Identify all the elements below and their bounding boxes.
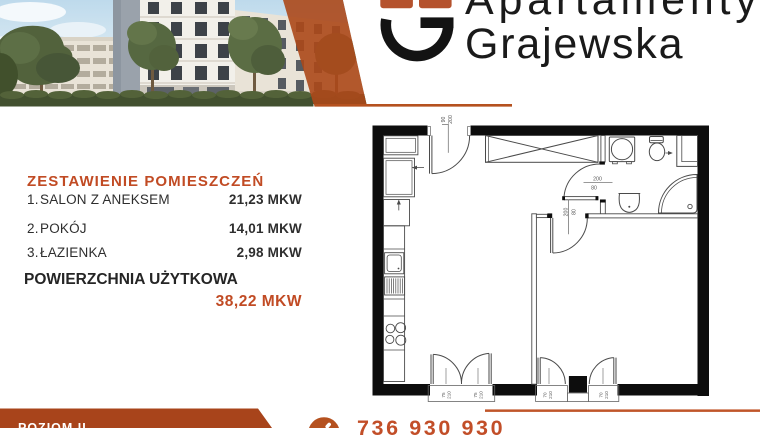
svg-text:80: 80 [572,209,578,215]
svg-text:210: 210 [604,391,609,399]
svg-text:75: 75 [473,392,478,398]
svg-text:210: 210 [548,391,553,399]
svg-text:200: 200 [448,115,454,124]
svg-text:75: 75 [441,392,446,398]
svg-text:200: 200 [593,177,602,183]
svg-text:70: 70 [543,392,548,398]
svg-text:80: 80 [591,186,597,192]
svg-text:70: 70 [599,392,604,398]
svg-text:90: 90 [441,117,447,123]
svg-text:210: 210 [479,391,484,399]
svg-text:210: 210 [447,391,452,399]
